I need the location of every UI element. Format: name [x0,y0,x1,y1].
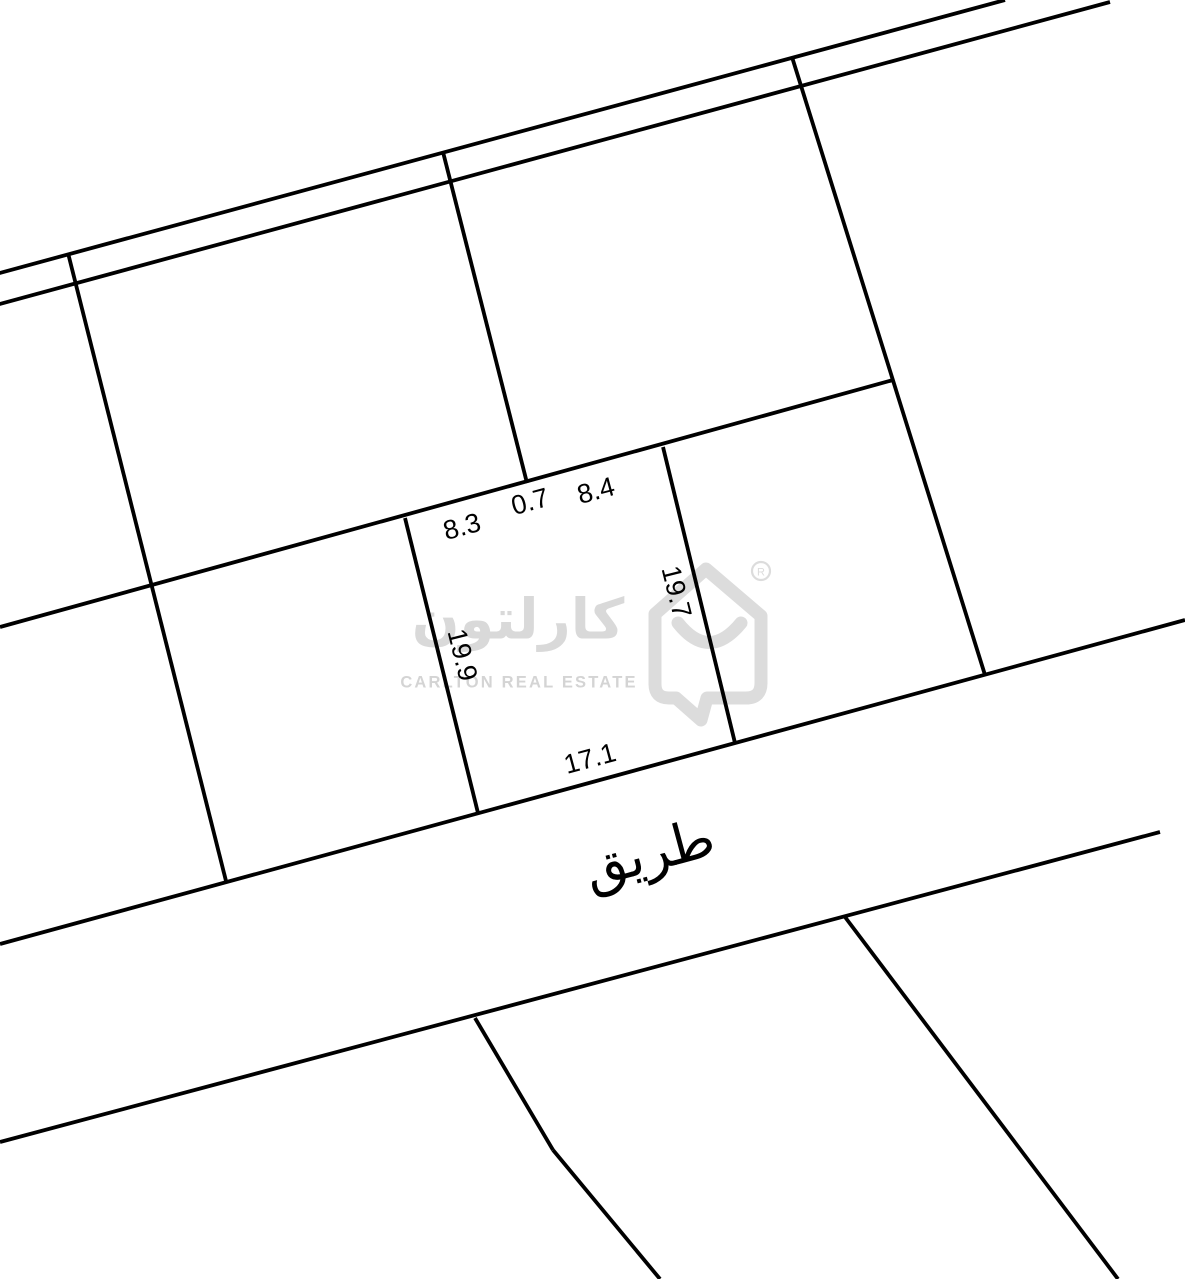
lower-left-boundary-a-line [475,1018,553,1150]
upper-lane-bottom-edge-line [0,2,1110,305]
map-lines-layer: R [0,0,1185,1279]
road-lower-edge-line [0,832,1160,1142]
upper-left-boundary-line [68,253,226,881]
upper-plots-front-line-line [0,380,893,627]
lower-left-boundary-b-line [553,1150,660,1279]
registered-trademark-letter: R [757,567,765,579]
boundary-lines-group [0,0,1185,1279]
upper-right-boundary-line [792,57,985,675]
upper-lane-top-edge-line [0,0,1005,274]
lower-right-boundary-line [845,917,1118,1279]
notch-boundary-line [443,152,527,483]
cadastral-plot-map: كارلتون CARLTON REAL ESTATE R 8.3 0.7 8.… [0,0,1185,1279]
